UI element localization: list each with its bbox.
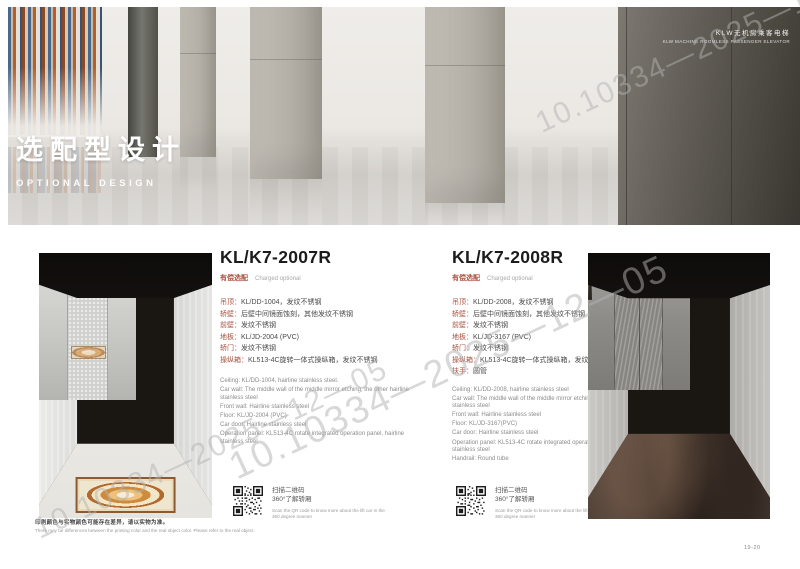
- series-title-cn: KLW无机房乘客电梯: [663, 27, 790, 37]
- spec-en-row: Floor: KL/JD-2004 (PVC): [220, 413, 428, 421]
- spec-value: 后壁中间镜面蚀刻，其他发纹不锈钢: [241, 311, 353, 318]
- spec-en-row: Operation panel: KL513-4C rotate integra…: [220, 431, 428, 446]
- banner-photo: KLW无机房乘客电梯 KLW MACHINE ROOMLESS PASSENGE…: [8, 7, 800, 225]
- pillar-reflection: [250, 179, 322, 223]
- spec-label: 前壁：: [452, 322, 473, 329]
- spec-label: 扶手：: [452, 368, 473, 375]
- spec-row: 轿壁：后壁中间镜面蚀刻，其他发纹不锈钢: [220, 309, 428, 321]
- specs-en-list: Ceiling: KL/DD-1004, hairline stainless …: [220, 378, 428, 446]
- spec-label: 吊顶：: [220, 299, 241, 306]
- spec-value: 发纹不锈钢: [473, 345, 508, 352]
- spec-value: 发纹不锈钢: [241, 345, 276, 352]
- spec-value: KL513-4C旋转一体式操纵箱，发纹不锈钢: [248, 357, 378, 364]
- floor-medallion: [75, 477, 176, 513]
- spec-row: 地板：KL/JD-2004 (PVC): [220, 332, 428, 344]
- paid-option-cn: 有偿选配: [220, 273, 248, 283]
- qr-caption: 扫描二维码 360°了解轿厢 Scan the QR code to know …: [272, 486, 392, 519]
- color-disclaimer: 印刷颜色与实物颜色可能存在差异，请以实物为准。 There may be dif…: [35, 518, 255, 533]
- spec-label: 轿壁：: [220, 311, 241, 318]
- spec-label: 轿壁：: [452, 311, 473, 318]
- page-title: 选配型设计 OPTIONAL DESIGN: [16, 128, 186, 189]
- spec-label: 轿门：: [452, 345, 473, 352]
- spec-en-row: Car wall: The middle wall of the middle …: [220, 387, 428, 402]
- elevator-interior-photo-2007R: [39, 253, 212, 518]
- disclaimer-cn: 印刷颜色与实物颜色可能存在差异，请以实物为准。: [35, 518, 255, 526]
- spec-en-row: Ceiling: KL/DD-1004, hairline stainless …: [220, 378, 428, 386]
- spec-value: 发纹不锈钢: [241, 322, 276, 329]
- spec-value: 后壁中间镜面蚀刻，其他发纹不锈钢: [473, 311, 585, 318]
- spec-label: 地板：: [452, 334, 473, 341]
- mosaic-fade: [8, 67, 102, 137]
- banner-pillar: [425, 7, 505, 203]
- spec-value: 发纹不锈钢: [473, 322, 508, 329]
- spec-value: KL/DD-2008，发纹不锈钢: [473, 299, 554, 306]
- spec-label: 前壁：: [220, 322, 241, 329]
- paid-option-en: Charged optional: [255, 276, 301, 282]
- qr-section: 扫描二维码 360°了解轿厢 Scan the QR code to know …: [233, 486, 392, 519]
- model-name: KL/K7-2007R: [220, 247, 428, 268]
- pillar-seam: [425, 65, 505, 66]
- spec-label: 地板：: [220, 334, 241, 341]
- pillar-seam: [180, 53, 216, 54]
- floor-medallion-reflection: [71, 346, 106, 360]
- spec-en-row: Front wall: Hairline stainless steel: [220, 404, 428, 412]
- product-section-2007R: KL/K7-2007R 有偿选配 Charged optional 吊顶：KL/…: [220, 247, 428, 547]
- panel-seam: [626, 7, 627, 225]
- paid-option-row: 有偿选配 Charged optional: [220, 273, 428, 283]
- page-number: 19-20: [744, 545, 761, 551]
- page-title-en: OPTIONAL DESIGN: [16, 178, 186, 189]
- banner-pillar: [250, 7, 322, 179]
- specs-cn-list: 吊顶：KL/DD-1004，发纹不锈钢 轿壁：后壁中间镜面蚀刻，其他发纹不锈钢 …: [220, 297, 428, 366]
- spec-row: 前壁：发纹不锈钢: [220, 320, 428, 332]
- spec-label: 轿门：: [220, 345, 241, 352]
- elevator-interior-photo-2008R: [588, 253, 770, 519]
- spec-row: 操纵箱：KL513-4C旋转一体式操纵箱，发纹不锈钢: [220, 355, 428, 367]
- pillar-reflection: [425, 203, 505, 225]
- spec-label: 操纵箱：: [220, 357, 248, 364]
- spec-row: 轿门：发纹不锈钢: [220, 343, 428, 355]
- spec-label: 吊顶：: [452, 299, 473, 306]
- spec-row: 吊顶：KL/DD-1004，发纹不锈钢: [220, 297, 428, 309]
- spec-value: KL/DD-1004，发纹不锈钢: [241, 299, 322, 306]
- page-title-cn: 选配型设计: [16, 128, 186, 167]
- spec-en-row: Car door: Hairline stainless steel: [220, 422, 428, 430]
- elevator-door-panel: KLW无机房乘客电梯 KLW MACHINE ROOMLESS PASSENGE…: [618, 7, 800, 225]
- spec-label: 操纵箱：: [452, 357, 480, 364]
- spec-value: 圆管: [473, 368, 487, 375]
- catalog-page: KLW无机房乘客电梯 KLW MACHINE ROOMLESS PASSENGE…: [0, 0, 800, 569]
- qr-code: [456, 486, 486, 516]
- disclaimer-en: There may be differences between the pri…: [35, 528, 255, 533]
- qr-caption-en: Scan the QR code to know more about the …: [272, 508, 392, 519]
- qr-code: [233, 486, 263, 516]
- qr-caption-cn-2: 360°了解轿厢: [272, 496, 392, 505]
- spec-value: KL/JD-2004 (PVC): [241, 334, 299, 341]
- paid-option-en: Charged optional: [487, 276, 533, 282]
- pillar-seam: [250, 59, 322, 60]
- qr-caption-cn-1: 扫描二维码: [272, 487, 392, 496]
- banner-corner-text: KLW无机房乘客电梯 KLW MACHINE ROOMLESS PASSENGE…: [663, 27, 790, 44]
- series-title-en: KLW MACHINE ROOMLESS PASSENGER ELEVATOR: [663, 39, 790, 44]
- paid-option-cn: 有偿选配: [452, 273, 480, 283]
- spec-value: KL/JD-3167 (PVC): [473, 334, 531, 341]
